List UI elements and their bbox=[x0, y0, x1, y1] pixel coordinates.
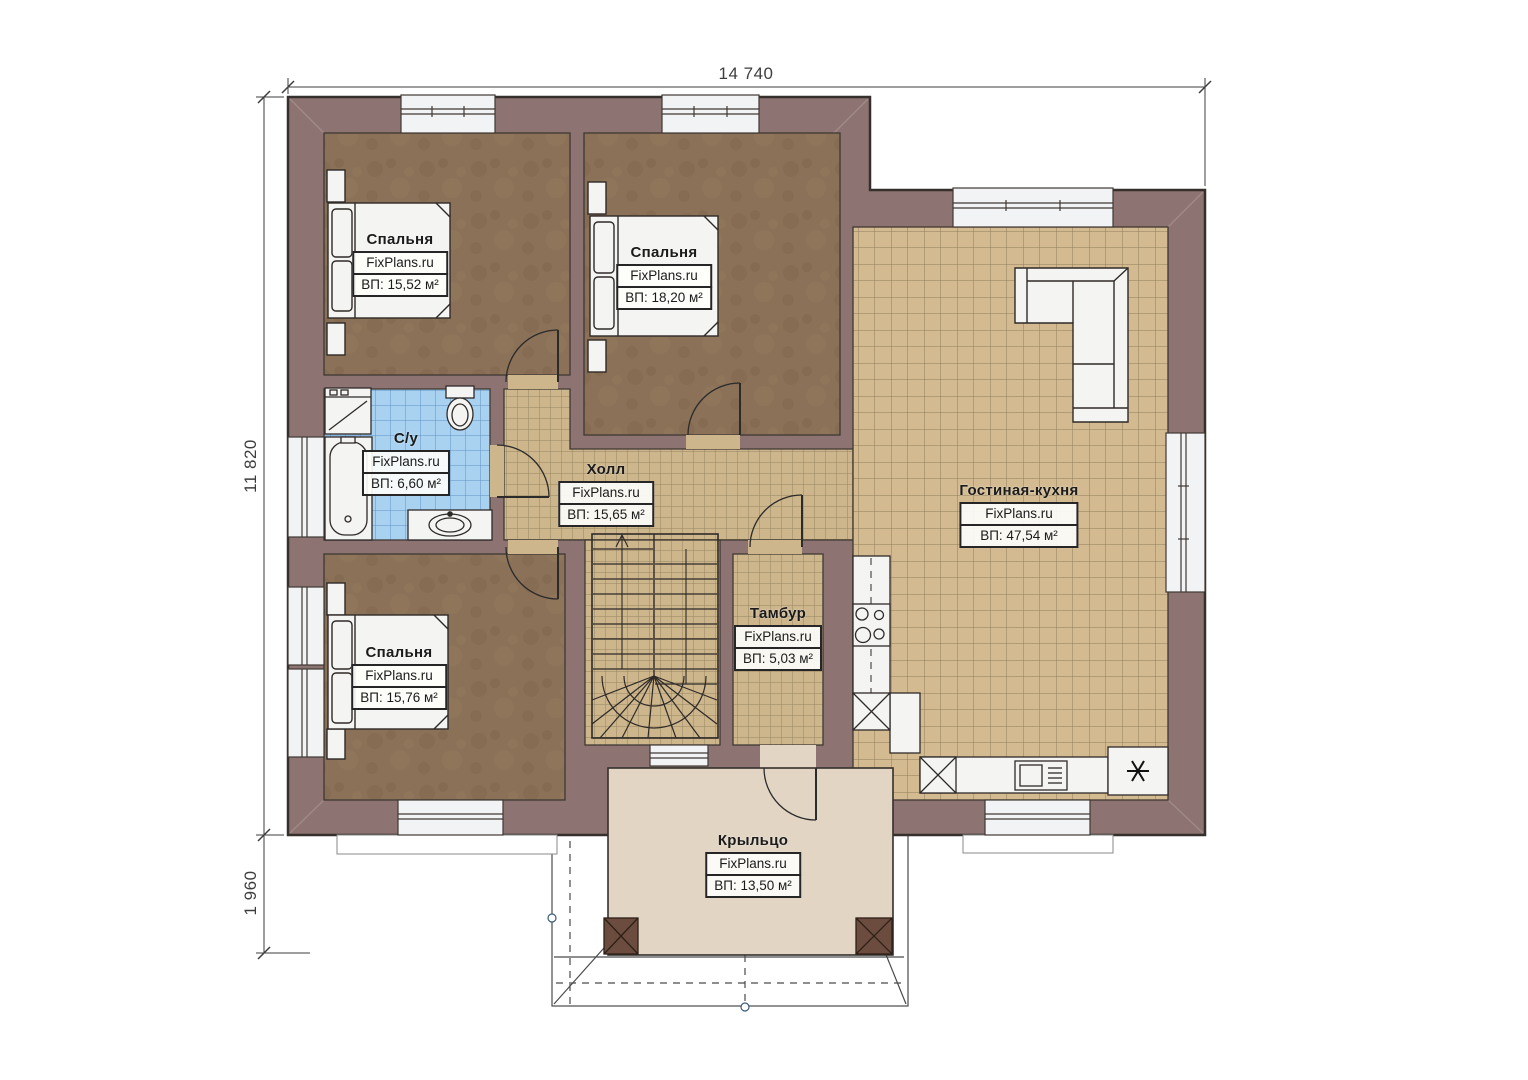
room-name: Тамбур bbox=[734, 605, 822, 622]
window-kitchen-bottom bbox=[963, 800, 1113, 853]
site-watermark: FixPlans.ru bbox=[705, 852, 801, 876]
floor-plan-drawing bbox=[0, 0, 1528, 1080]
toilet bbox=[446, 386, 474, 430]
room-label-vestibule: Тамбур FixPlans.ru ВП: 5,03 м² bbox=[734, 605, 822, 671]
room-area: ВП: 15,76 м² bbox=[351, 686, 447, 710]
bathroom-sink bbox=[408, 510, 492, 540]
site-watermark: FixPlans.ru bbox=[558, 481, 654, 505]
room-area: ВП: 13,50 м² bbox=[705, 874, 801, 898]
stove bbox=[853, 604, 890, 646]
room-label-bedroom-3: Спальня FixPlans.ru ВП: 15,76 м² bbox=[351, 644, 447, 710]
room-label-bathroom: С/у FixPlans.ru ВП: 6,60 м² bbox=[362, 430, 450, 496]
window-bedroom-3-left bbox=[288, 587, 324, 757]
window-living-right bbox=[1166, 433, 1205, 592]
room-name: Спальня bbox=[616, 244, 712, 261]
room-area: ВП: 15,65 м² bbox=[558, 503, 654, 527]
porch-column bbox=[856, 918, 892, 954]
window-living-top bbox=[953, 188, 1113, 227]
kitchen-counter-corner bbox=[890, 693, 920, 753]
room-label-porch: Крыльцо FixPlans.ru ВП: 13,50 м² bbox=[705, 832, 801, 898]
window-bathroom-left bbox=[288, 437, 324, 537]
kitchen-sink bbox=[1015, 761, 1067, 790]
site-watermark: FixPlans.ru bbox=[734, 625, 822, 649]
site-watermark: FixPlans.ru bbox=[352, 251, 448, 275]
room-name: Спальня bbox=[351, 644, 447, 661]
washing-machine bbox=[325, 388, 371, 434]
site-watermark: FixPlans.ru bbox=[362, 450, 450, 474]
room-label-bedroom-2: Спальня FixPlans.ru ВП: 18,20 м² bbox=[616, 244, 712, 310]
room-name: Спальня bbox=[352, 231, 448, 248]
refrigerator bbox=[1108, 747, 1168, 795]
dimension-porch-label: 1 960 bbox=[241, 870, 261, 915]
room-name: С/у bbox=[362, 430, 450, 447]
window-bedroom-1 bbox=[401, 95, 495, 133]
kitchen-cabinet-x bbox=[853, 693, 890, 730]
dimension-porch bbox=[256, 835, 310, 959]
kitchen-cabinet-x bbox=[920, 757, 956, 793]
window-bedroom-2 bbox=[662, 95, 759, 133]
room-name: Крыльцо bbox=[705, 832, 801, 849]
room-area: ВП: 47,54 м² bbox=[959, 524, 1078, 548]
room-name: Гостиная-кухня bbox=[959, 482, 1078, 499]
dimension-height-label: 11 820 bbox=[241, 439, 261, 493]
room-area: ВП: 18,20 м² bbox=[616, 286, 712, 310]
floor-plan-canvas: 14 740 11 820 1 960 Спальня FixPlans.ru … bbox=[0, 0, 1528, 1080]
porch-column bbox=[604, 918, 638, 954]
room-area: ВП: 15,52 м² bbox=[352, 273, 448, 297]
room-name: Холл bbox=[558, 461, 654, 478]
window-stairwell bbox=[650, 745, 708, 766]
dimension-width-label: 14 740 bbox=[719, 64, 774, 84]
room-label-hall: Холл FixPlans.ru ВП: 15,65 м² bbox=[558, 461, 654, 527]
site-watermark: FixPlans.ru bbox=[351, 664, 447, 688]
room-label-bedroom-1: Спальня FixPlans.ru ВП: 15,52 м² bbox=[352, 231, 448, 297]
room-area: ВП: 6,60 м² bbox=[362, 472, 450, 496]
room-label-living-kitchen: Гостиная-кухня FixPlans.ru ВП: 47,54 м² bbox=[959, 482, 1078, 548]
site-watermark: FixPlans.ru bbox=[616, 264, 712, 288]
site-watermark: FixPlans.ru bbox=[959, 502, 1078, 526]
room-area: ВП: 5,03 м² bbox=[734, 647, 822, 671]
